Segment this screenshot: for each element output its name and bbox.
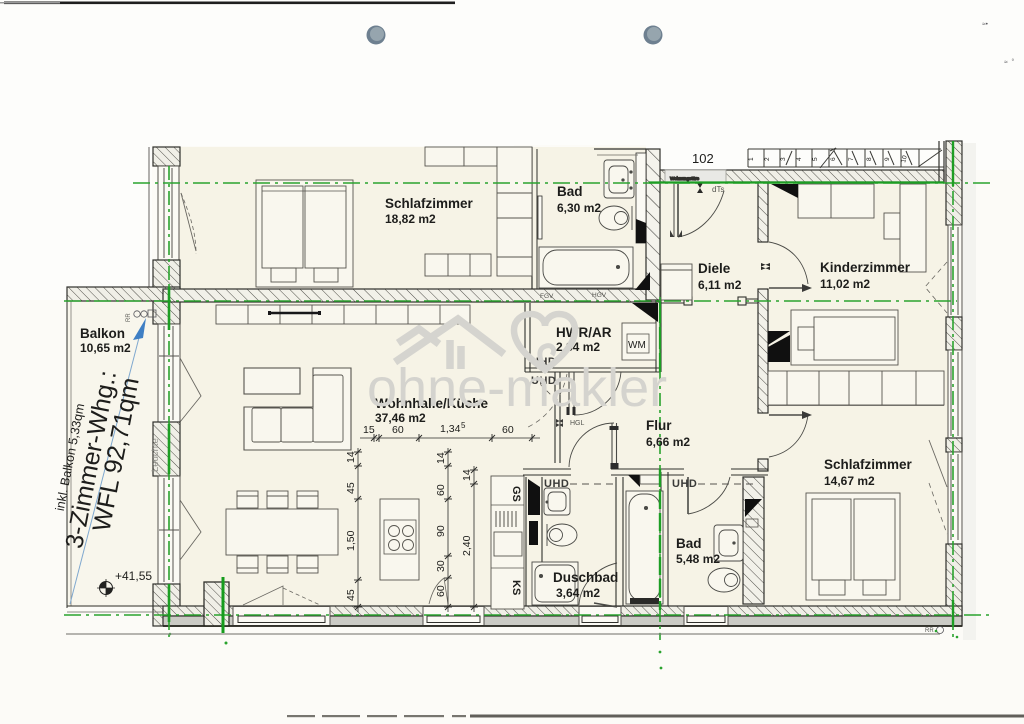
svg-text:5,48 m2: 5,48 m2 (676, 552, 720, 566)
svg-text:UHD: UHD (672, 478, 697, 490)
svg-text:WM: WM (628, 340, 646, 351)
svg-text:10,65 m2: 10,65 m2 (80, 341, 131, 355)
svg-text:Flur: Flur (646, 418, 672, 433)
svg-text:HGV: HGV (592, 292, 607, 299)
svg-text:FGV: FGV (540, 293, 554, 300)
svg-text:≈︒: ≈︒ (1004, 58, 1015, 66)
svg-text:Schlafzimmer: Schlafzimmer (385, 196, 474, 211)
svg-text:60: 60 (435, 585, 447, 597)
svg-text:60: 60 (392, 424, 404, 436)
svg-text:30: 30 (435, 560, 447, 572)
svg-text:6,11 m2: 6,11 m2 (698, 278, 742, 292)
svg-text:RR: RR (126, 313, 132, 322)
svg-text:5: 5 (812, 157, 819, 161)
svg-text:14,67 m2: 14,67 m2 (824, 474, 875, 488)
svg-text:90: 90 (435, 525, 447, 537)
svg-text:Kinderzimmer: Kinderzimmer (820, 260, 911, 275)
svg-text:15: 15 (363, 424, 375, 436)
svg-text:HGL: HGL (570, 420, 585, 427)
svg-text:3,64 m2: 3,64 m2 (556, 586, 600, 600)
svg-text:2,40: 2,40 (461, 535, 473, 556)
svg-text:≈•: ≈• (982, 21, 989, 28)
svg-text:6: 6 (830, 157, 837, 161)
svg-text:6,30 m2: 6,30 m2 (557, 201, 601, 215)
svg-text:6,66 m2: 6,66 m2 (646, 435, 690, 449)
svg-text:1,34: 1,34 (440, 423, 461, 435)
svg-text:HWR/AR: HWR/AR (556, 325, 612, 340)
svg-text:Bad: Bad (676, 536, 702, 551)
svg-text:14: 14 (435, 452, 447, 464)
svg-text:8: 8 (866, 157, 873, 161)
svg-text:GS: GS (510, 486, 522, 502)
svg-text:3: 3 (780, 157, 787, 161)
svg-text:+41,55: +41,55 (115, 569, 152, 583)
svg-text:45: 45 (345, 589, 357, 601)
svg-text:Bad: Bad (557, 184, 583, 199)
svg-text:1: 1 (748, 157, 755, 161)
svg-text:2: 2 (764, 157, 771, 161)
svg-text:Balkon: Balkon (80, 326, 125, 341)
svg-text:Duschbad: Duschbad (553, 570, 618, 585)
svg-text:18,82 m2: 18,82 m2 (385, 212, 436, 226)
svg-text:KS: KS (510, 580, 522, 595)
svg-text:60: 60 (502, 424, 514, 436)
svg-text:Wohnungstüre: Wohnungstüre (670, 176, 700, 181)
svg-text:ohne-makler: ohne-makler (367, 358, 667, 418)
svg-text:60: 60 (435, 484, 447, 496)
svg-text:102: 102 (692, 151, 714, 166)
svg-text:1,50: 1,50 (345, 530, 357, 551)
svg-text:11,02 m2: 11,02 m2 (820, 277, 870, 291)
svg-text:9: 9 (884, 157, 891, 161)
svg-text:Leuchte: Leuchte (150, 438, 161, 472)
svg-text:Schlafzimmer: Schlafzimmer (824, 457, 913, 472)
svg-text:14: 14 (461, 469, 473, 481)
svg-text:Diele: Diele (698, 261, 731, 276)
svg-text:RR: RR (925, 628, 934, 634)
svg-text:45: 45 (345, 482, 357, 494)
svg-text:4: 4 (796, 157, 803, 161)
svg-text:5: 5 (461, 421, 466, 430)
svg-text:dTs: dTs (712, 185, 724, 194)
svg-text:14: 14 (345, 451, 357, 463)
svg-text:UHD: UHD (544, 478, 569, 490)
svg-text:7: 7 (848, 157, 855, 161)
